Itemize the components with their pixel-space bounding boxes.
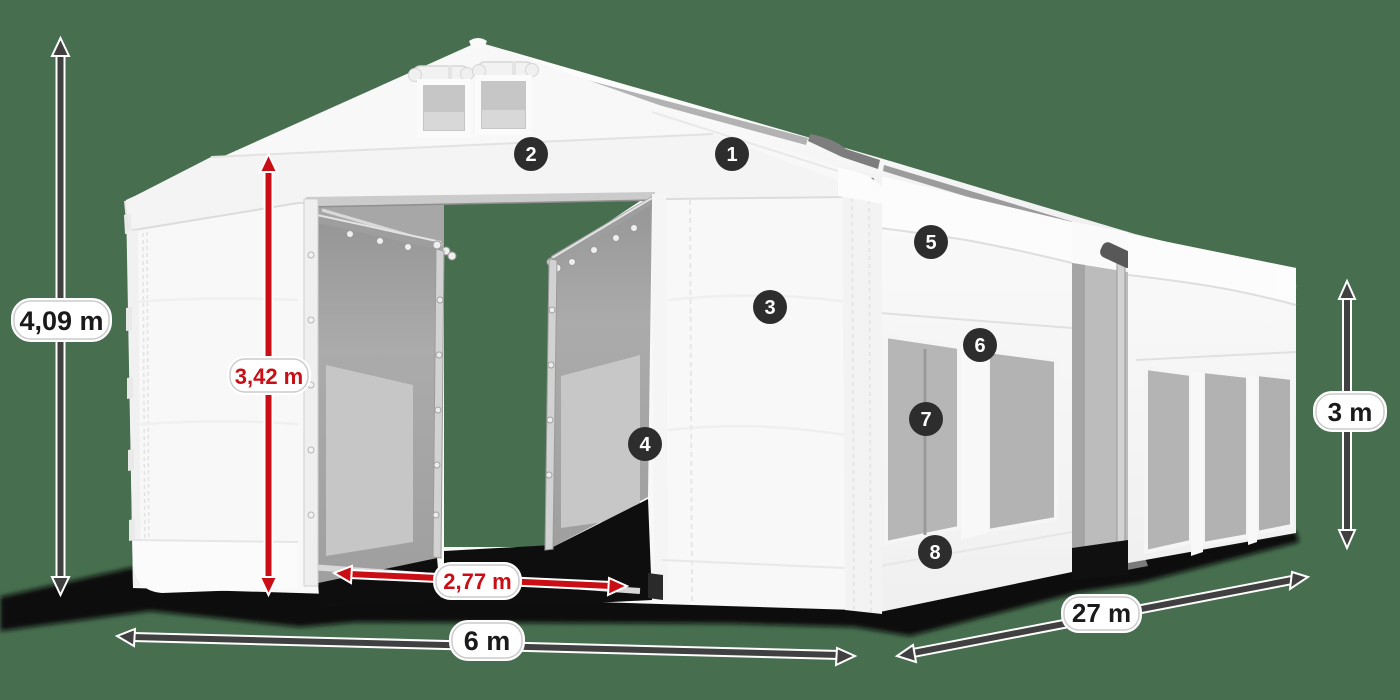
svg-text:4: 4 [639,434,651,456]
svg-text:27 m: 27 m [1072,598,1131,628]
svg-text:6: 6 [974,335,985,357]
svg-text:5: 5 [925,232,936,254]
svg-text:2: 2 [525,144,536,166]
svg-text:8: 8 [929,542,940,564]
svg-text:6 m: 6 m [464,626,511,656]
svg-text:2,77 m: 2,77 m [443,569,512,594]
svg-text:3,42 m: 3,42 m [235,364,304,389]
svg-text:4,09 m: 4,09 m [19,306,103,336]
svg-text:3: 3 [764,297,775,319]
svg-text:7: 7 [920,409,931,431]
svg-text:3 m: 3 m [1328,397,1373,427]
svg-text:1: 1 [726,144,737,166]
